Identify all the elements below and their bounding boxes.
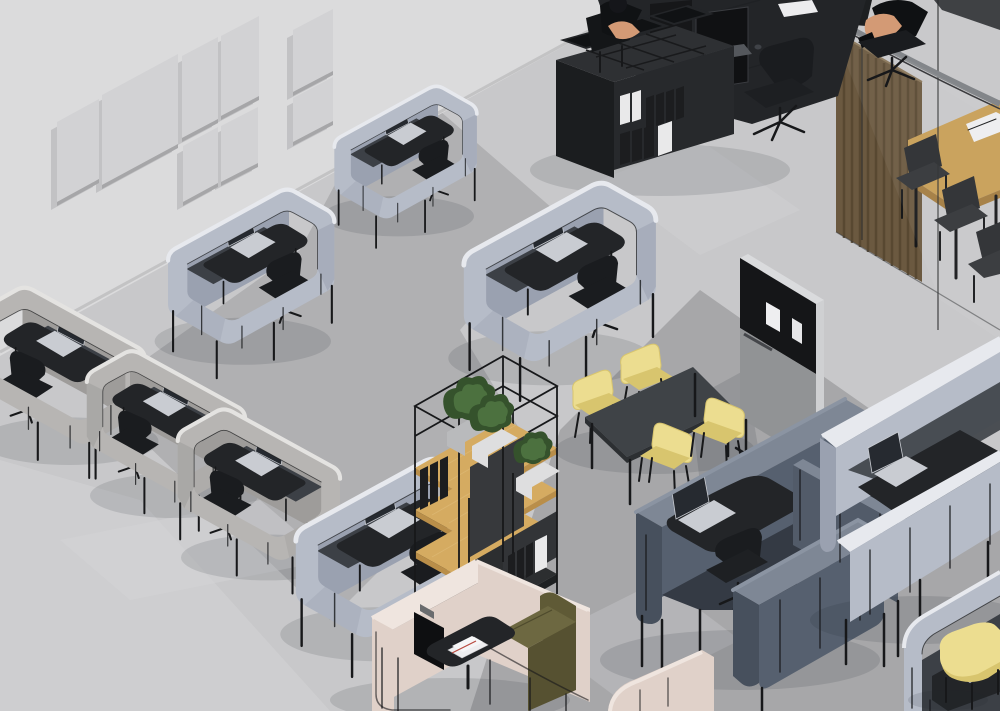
navy-side-wall xyxy=(636,512,662,624)
mouse xyxy=(755,45,762,50)
office-render xyxy=(0,0,1000,711)
isometric-office-scene xyxy=(0,0,1000,711)
